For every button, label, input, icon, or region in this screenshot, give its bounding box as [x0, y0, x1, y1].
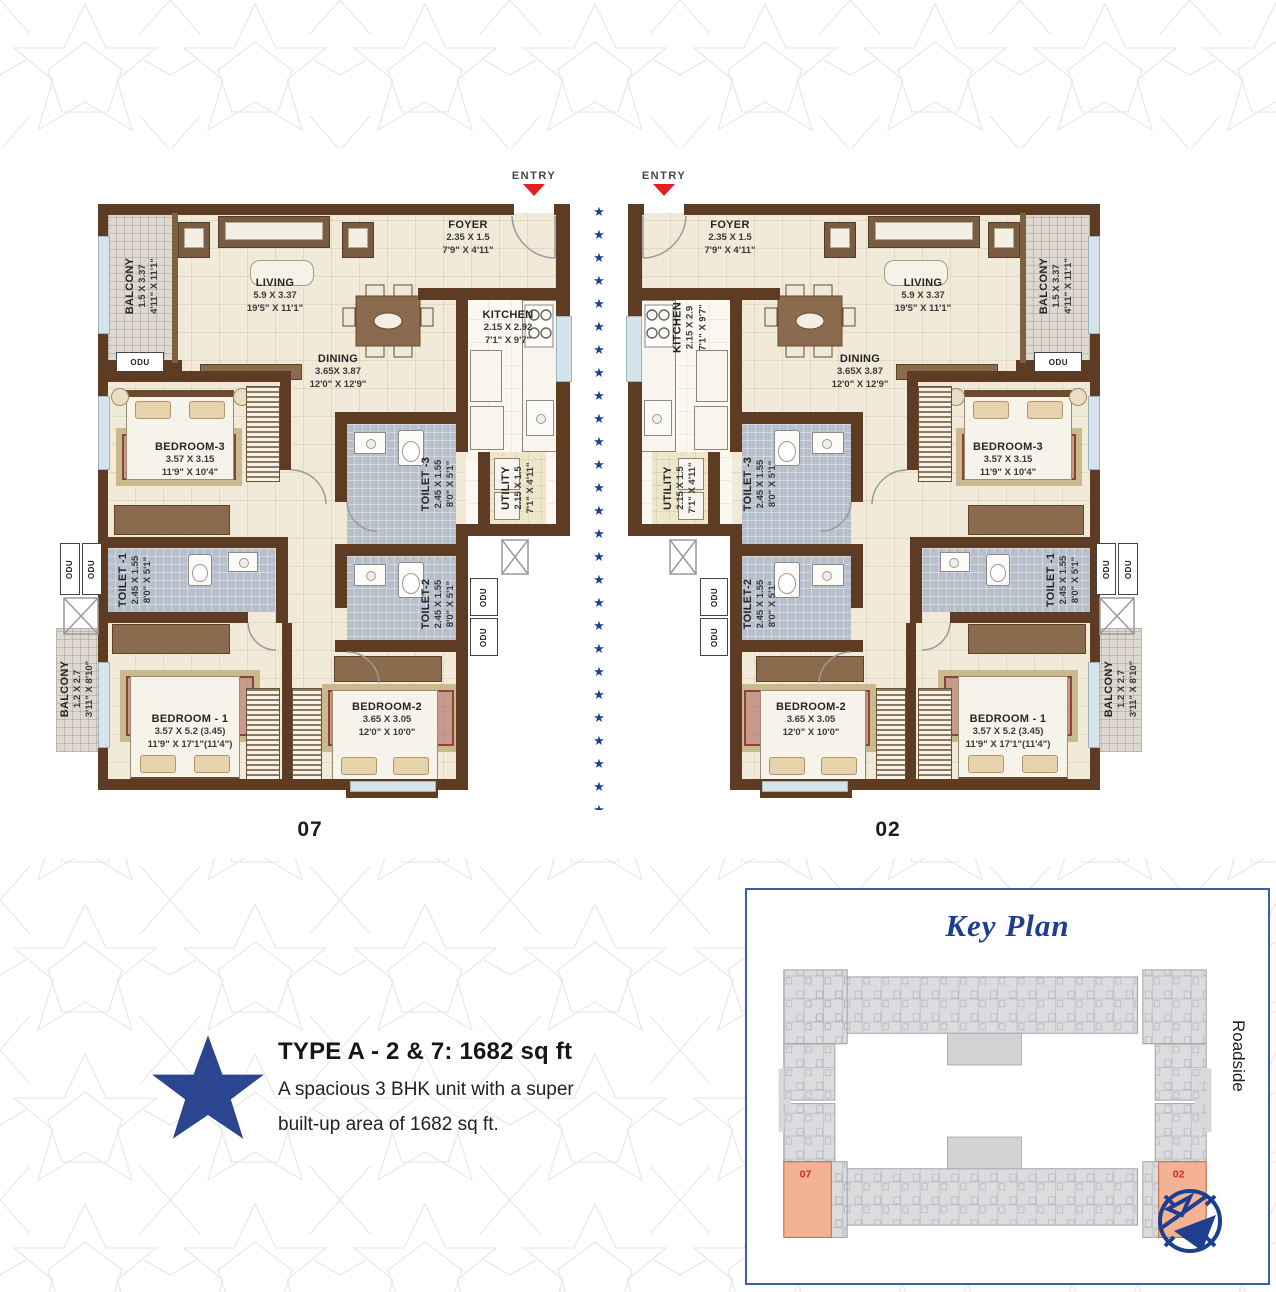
- odu-label: ODU: [1102, 559, 1111, 578]
- window: [1088, 396, 1100, 470]
- brochure-page: ENTRY: [0, 0, 1276, 1292]
- type-title: TYPE A - 2 & 7: 1682 sq ft: [278, 1038, 574, 1066]
- walls-layer: [50, 200, 570, 800]
- window: [98, 236, 110, 334]
- window: [98, 396, 110, 470]
- unit-07-column: ENTRY: [50, 200, 570, 842]
- odu-box: ODU: [1034, 352, 1082, 372]
- window: [1088, 236, 1100, 334]
- floor-plans-row: ENTRY: [50, 200, 1148, 842]
- odu-box: ODU: [82, 543, 102, 595]
- entry-marker: ENTRY: [614, 170, 714, 196]
- floor-plan-unit-07: ENTRY: [50, 200, 570, 800]
- odu-label: ODU: [480, 627, 489, 646]
- odu-box: ODU: [700, 578, 728, 616]
- type-line-2: built-up area of 1682 sq ft.: [278, 1114, 574, 1136]
- entry-label: ENTRY: [614, 170, 714, 182]
- odu-label: ODU: [710, 587, 719, 606]
- odu-label: ODU: [88, 559, 97, 578]
- unit-02-column: ENTRY: [628, 200, 1148, 842]
- window: [556, 316, 572, 382]
- key-plan-unit-07-label: 07: [800, 1169, 812, 1181]
- star-icon: [150, 1032, 266, 1142]
- entry-marker: ENTRY: [484, 170, 584, 196]
- odu-box: ODU: [60, 543, 80, 595]
- odu-label: ODU: [130, 358, 149, 367]
- type-line-1: A spacious 3 BHK unit with a super: [278, 1079, 574, 1101]
- unit-number: 07: [50, 818, 570, 842]
- odu-box: ODU: [470, 578, 498, 616]
- key-plan-box: Key Plan: [745, 888, 1270, 1285]
- odu-label: ODU: [66, 559, 75, 578]
- key-plan-title: Key Plan: [747, 908, 1268, 944]
- odu-label: ODU: [480, 587, 489, 606]
- roadside-label: Roadside: [1228, 1020, 1248, 1092]
- entry-label: ENTRY: [484, 170, 584, 182]
- window: [350, 781, 436, 792]
- odu-label: ODU: [1124, 559, 1133, 578]
- odu-box: ODU: [1118, 543, 1138, 595]
- odu-box: ODU: [470, 618, 498, 656]
- window: [626, 316, 642, 382]
- window: [1088, 662, 1100, 748]
- type-description-text: TYPE A - 2 & 7: 1682 sq ft A spacious 3 …: [278, 1032, 574, 1136]
- odu-label: ODU: [710, 627, 719, 646]
- window: [98, 662, 110, 748]
- divider-stars: ★★★★★★★★★★★★★★★★★★★★★★★★★★★: [592, 200, 606, 810]
- odu-box: ODU: [1096, 543, 1116, 595]
- compass-icon: [1144, 1175, 1236, 1267]
- walls-layer: [628, 200, 1148, 800]
- type-description: TYPE A - 2 & 7: 1682 sq ft A spacious 3 …: [150, 1032, 574, 1142]
- window: [762, 781, 848, 792]
- entry-arrow-icon: [523, 184, 545, 196]
- plan-divider: ★★★★★★★★★★★★★★★★★★★★★★★★★★★: [570, 200, 628, 810]
- odu-box: ODU: [116, 352, 164, 372]
- entry-arrow-icon: [653, 184, 675, 196]
- unit-number: 02: [628, 818, 1148, 842]
- odu-box: ODU: [700, 618, 728, 656]
- odu-label: ODU: [1048, 358, 1067, 367]
- floor-plan-unit-02: ENTRY: [628, 200, 1148, 800]
